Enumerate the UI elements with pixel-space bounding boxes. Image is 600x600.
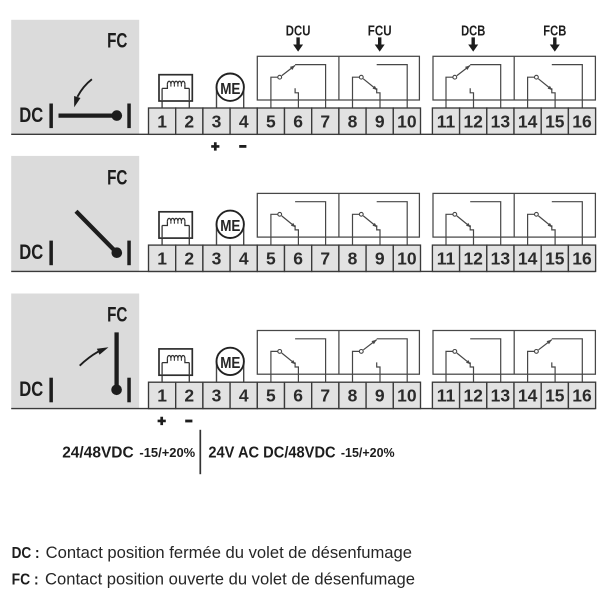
svg-text:Contact position ouverte du vo: Contact position ouverte du volet de dés… [45,571,415,589]
svg-text:10: 10 [397,111,417,131]
svg-text:24/48VDC: 24/48VDC [62,444,134,461]
svg-text:2: 2 [184,111,194,131]
svg-text:7: 7 [320,386,330,406]
svg-text:DC: DC [19,378,43,401]
svg-text:9: 9 [375,111,385,131]
svg-text:9: 9 [375,249,385,269]
svg-text:Contact position fermée du vol: Contact position fermée du volet de dése… [46,544,412,562]
svg-text:6: 6 [293,111,303,131]
svg-text:8: 8 [348,386,358,406]
svg-text:DCB: DCB [461,23,485,39]
svg-text:16: 16 [572,249,592,269]
svg-text:13: 13 [491,249,511,269]
svg-text:ME: ME [220,81,240,98]
svg-text:12: 12 [463,386,483,406]
svg-text:9: 9 [375,386,385,406]
svg-text:-15/+20%: -15/+20% [341,446,395,460]
svg-text:8: 8 [348,249,358,269]
svg-text:7: 7 [320,111,330,131]
svg-text:DC: DC [19,104,43,127]
svg-text:-15/+20%: -15/+20% [139,445,195,460]
svg-text:11: 11 [437,111,456,131]
svg-text:DC :: DC : [12,545,40,562]
svg-text:3: 3 [212,111,222,131]
svg-text:1: 1 [157,249,167,269]
svg-text:1: 1 [157,111,167,131]
svg-text:16: 16 [572,386,592,406]
svg-text:7: 7 [320,249,330,269]
svg-text:FC: FC [107,304,127,327]
svg-text:12: 12 [463,249,483,269]
svg-text:4: 4 [239,386,249,406]
svg-text:2: 2 [184,386,194,406]
svg-text:DC: DC [19,241,43,264]
svg-text:5: 5 [266,386,276,406]
svg-text:6: 6 [293,249,303,269]
svg-text:3: 3 [212,249,222,269]
svg-text:FC: FC [107,166,127,189]
svg-text:10: 10 [397,249,417,269]
svg-text:15: 15 [545,111,565,131]
svg-text:FCU: FCU [368,23,392,39]
svg-text:3: 3 [212,386,222,406]
svg-text:ME: ME [220,355,240,372]
svg-text:14: 14 [518,249,538,269]
svg-text:16: 16 [572,111,592,131]
svg-text:FCB: FCB [543,23,566,39]
svg-text:8: 8 [348,111,358,131]
svg-text:13: 13 [491,111,511,131]
svg-text:10: 10 [397,386,417,406]
svg-text:4: 4 [239,111,249,131]
svg-text:2: 2 [184,249,194,269]
svg-text:24V AC DC/48VDC: 24V AC DC/48VDC [208,444,336,461]
svg-text:14: 14 [518,111,538,131]
svg-text:ME: ME [220,218,240,235]
svg-text:11: 11 [437,249,456,269]
svg-text:15: 15 [545,386,565,406]
svg-text:DCU: DCU [286,23,311,39]
svg-text:5: 5 [266,111,276,131]
svg-text:13: 13 [491,386,511,406]
svg-text:12: 12 [463,111,483,131]
svg-text:15: 15 [545,249,565,269]
svg-text:14: 14 [518,386,538,406]
svg-text:FC :: FC : [12,572,39,589]
svg-text:5: 5 [266,249,276,269]
svg-text:4: 4 [239,249,249,269]
svg-text:6: 6 [293,386,303,406]
svg-text:11: 11 [437,386,456,406]
svg-text:FC: FC [107,29,127,52]
svg-text:1: 1 [157,386,167,406]
